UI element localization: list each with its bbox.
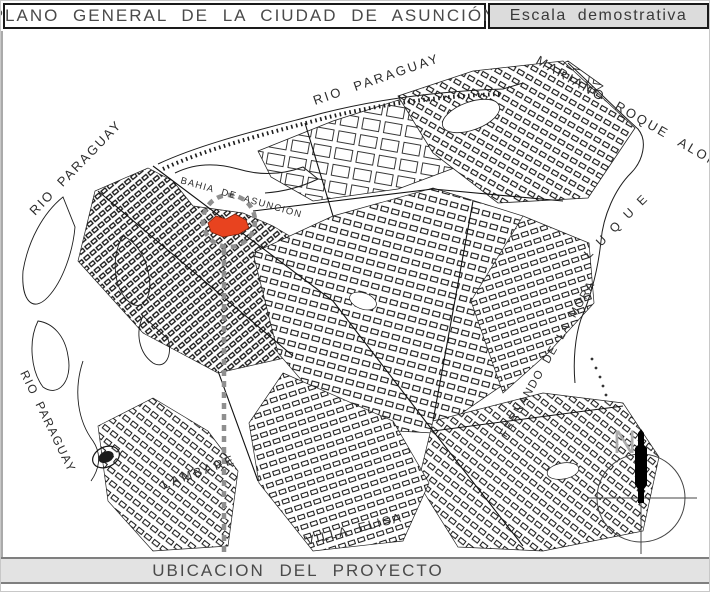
title-bar: PLANO GENERAL DE LA CIUDAD DE ASUNCIÓN E…: [1, 1, 710, 31]
plan-sheet: PLANO GENERAL DE LA CIUDAD DE ASUNCIÓN E…: [0, 0, 710, 592]
scale-note: Escala demostrativa: [510, 7, 688, 25]
boundary-dots: [591, 358, 608, 397]
footer-label: UBICACION DEL PROYECTO: [152, 561, 443, 581]
sheet-title: PLANO GENERAL DE LA CIUDAD DE ASUNCIÓN: [0, 6, 497, 26]
label-luque: LUQUE: [581, 185, 657, 261]
footer-bar: UBICACION DEL PROYECTO: [1, 557, 710, 584]
compass-north-label: N: [613, 424, 636, 460]
label-rio-paraguay-lower-left: RIO PARAGUAY: [17, 368, 78, 474]
sheet-title-box: PLANO GENERAL DE LA CIUDAD DE ASUNCIÓN: [3, 3, 486, 29]
city-map-drawing: N RIO PARAGUAY RIO PARAGUAY RIO PARAGUAY…: [3, 31, 709, 557]
scale-note-box: Escala demostrativa: [488, 3, 709, 29]
map-area: N RIO PARAGUAY RIO PARAGUAY RIO PARAGUAY…: [1, 31, 710, 557]
